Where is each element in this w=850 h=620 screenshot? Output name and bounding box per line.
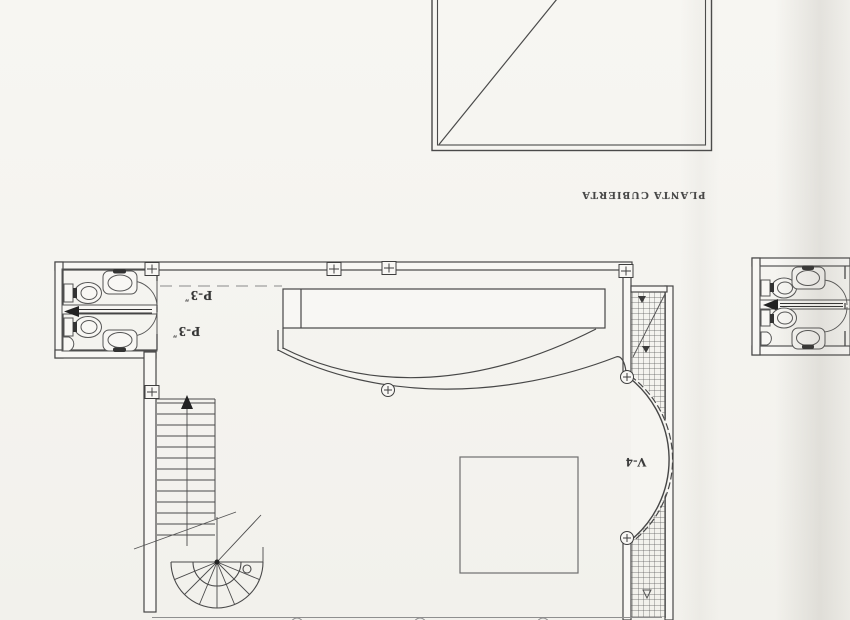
sink	[792, 328, 825, 349]
spiral-staircase	[171, 515, 263, 608]
square-column-marker	[145, 386, 159, 399]
wall-right-upper	[623, 270, 631, 376]
counter-front-curve-outer	[278, 350, 626, 389]
door-label-top: P-3″	[170, 285, 226, 303]
bathroom-block-right	[752, 258, 850, 355]
sink	[792, 266, 825, 290]
roof-plan-caption: PLANTA CUBIERTA	[581, 187, 705, 204]
scanned-floor-plan-page: PLANTA CUBIERTA P-3″ P-3″ V-4	[0, 0, 850, 620]
door-label-mark: ″	[184, 293, 189, 303]
plan-drawing	[0, 0, 850, 620]
counter-front-curve-inner	[283, 329, 596, 378]
square-column-marker	[382, 262, 396, 275]
square-column-marker	[619, 265, 633, 278]
door-label-text: P-3	[190, 286, 212, 302]
counter-back	[283, 289, 605, 328]
toilet	[64, 283, 102, 304]
stair-treads	[157, 403, 215, 535]
round-column-marker	[382, 384, 395, 397]
faucet	[802, 266, 814, 271]
stair-direction-arrow	[181, 395, 193, 409]
toilet	[64, 317, 102, 338]
spiral-center-pole	[215, 560, 220, 565]
faucet	[113, 348, 126, 353]
curved-counter	[278, 289, 626, 389]
door-label-text: P-3	[178, 322, 200, 338]
roof-plan	[432, 0, 712, 151]
toilet	[761, 308, 797, 328]
wall-right-lower	[623, 538, 631, 620]
wall-terrace-top	[631, 286, 667, 292]
handrail-post	[243, 565, 251, 573]
bidet	[63, 337, 74, 351]
bidet	[761, 332, 771, 345]
round-column-marker	[621, 371, 634, 384]
toilet	[761, 278, 797, 298]
square-column-marker	[327, 263, 341, 276]
square-column-marker	[145, 263, 159, 276]
faucet	[802, 345, 814, 350]
faucet	[113, 269, 126, 274]
sink	[103, 269, 137, 294]
door-label-bottom: P-3″	[157, 321, 215, 339]
door-label-mark: ″	[172, 329, 177, 339]
door-swing-arc	[822, 307, 847, 332]
floor-opening	[460, 457, 578, 573]
spiral-treads	[171, 562, 263, 608]
roof-diagonal-line	[439, 0, 557, 145]
bathroom-block-left	[62, 269, 157, 352]
sink	[103, 330, 137, 352]
round-column-marker	[621, 532, 634, 545]
window-label-v4: V-4	[613, 453, 659, 471]
